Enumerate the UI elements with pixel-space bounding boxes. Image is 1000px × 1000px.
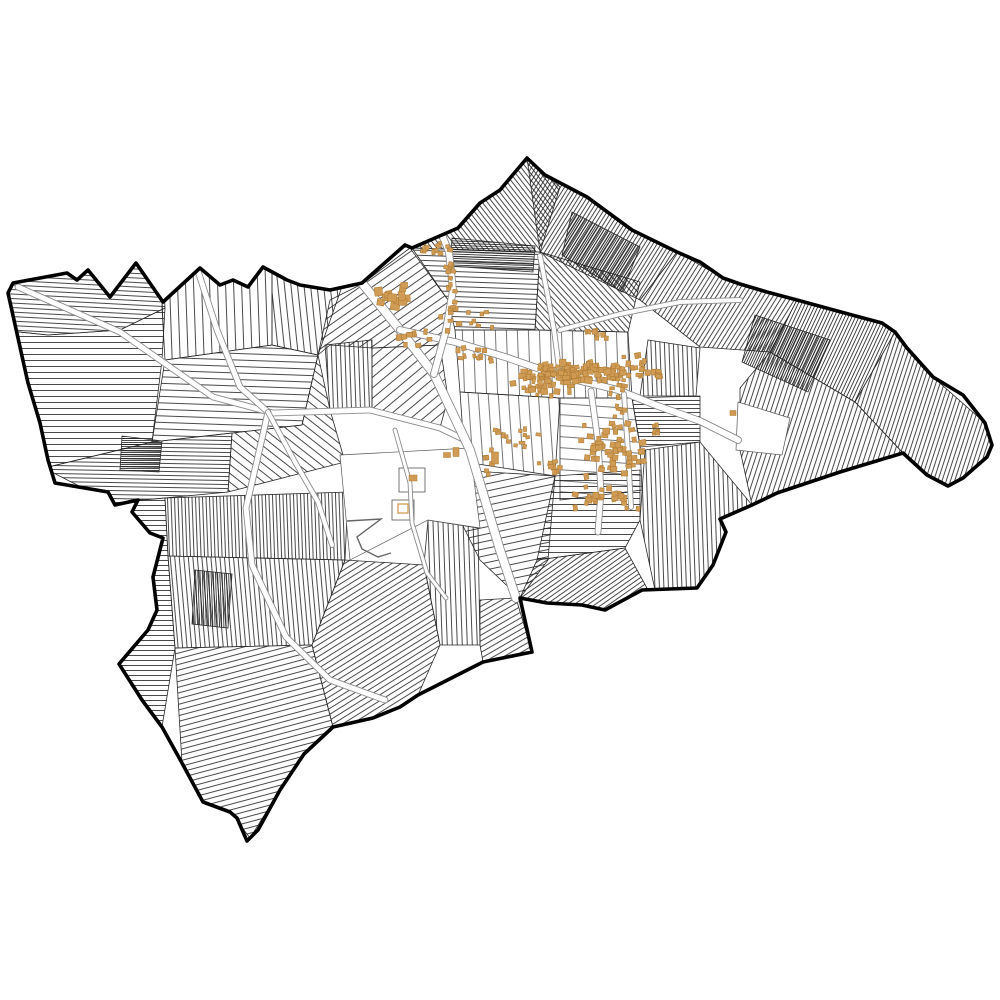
building xyxy=(610,387,615,390)
building xyxy=(626,450,632,456)
building xyxy=(489,448,493,453)
building xyxy=(639,439,647,446)
building xyxy=(617,437,621,441)
building xyxy=(599,488,604,493)
building xyxy=(445,328,450,334)
building xyxy=(490,325,493,330)
building xyxy=(573,504,578,511)
building xyxy=(476,356,480,360)
building xyxy=(510,380,517,386)
building xyxy=(597,436,601,441)
building xyxy=(398,291,406,301)
building xyxy=(553,388,560,394)
building xyxy=(514,444,518,448)
building xyxy=(523,433,527,437)
building xyxy=(645,370,651,376)
building xyxy=(452,289,457,293)
building xyxy=(624,420,631,427)
building xyxy=(603,428,610,435)
building xyxy=(567,388,571,394)
cadastral-map xyxy=(0,0,1000,1000)
building xyxy=(415,343,421,348)
building xyxy=(655,369,661,374)
building xyxy=(536,393,540,397)
building xyxy=(452,300,457,305)
building xyxy=(493,428,498,432)
building xyxy=(730,411,736,416)
building xyxy=(445,244,449,248)
building xyxy=(466,310,470,315)
building xyxy=(612,424,616,429)
building xyxy=(492,452,499,464)
building xyxy=(407,332,413,337)
building xyxy=(584,455,590,461)
building xyxy=(615,404,619,409)
building xyxy=(461,345,466,350)
building xyxy=(523,377,527,381)
building xyxy=(374,287,383,297)
building xyxy=(613,415,617,419)
building-outline xyxy=(398,504,408,513)
building xyxy=(409,475,417,481)
cadastral-map-page xyxy=(0,0,1000,1000)
building xyxy=(538,373,543,376)
building xyxy=(427,337,432,341)
building xyxy=(615,365,620,369)
building xyxy=(626,373,631,378)
building xyxy=(593,363,598,368)
building xyxy=(622,408,627,413)
building xyxy=(609,391,613,396)
building xyxy=(640,458,647,464)
building xyxy=(617,394,621,398)
building xyxy=(564,380,571,384)
building xyxy=(448,261,454,267)
building xyxy=(519,441,525,444)
building xyxy=(599,494,605,498)
building xyxy=(620,387,625,393)
building xyxy=(610,466,617,472)
building xyxy=(601,377,607,384)
building xyxy=(456,321,462,326)
building xyxy=(651,369,656,375)
building xyxy=(587,330,592,335)
building xyxy=(655,431,660,435)
building xyxy=(655,423,659,428)
building xyxy=(612,496,619,501)
building xyxy=(604,336,608,341)
building xyxy=(523,444,527,449)
building xyxy=(571,372,577,378)
building xyxy=(538,363,543,369)
building xyxy=(396,334,402,341)
building xyxy=(636,506,641,511)
building xyxy=(448,276,453,281)
building xyxy=(451,269,456,273)
building xyxy=(572,378,580,384)
building xyxy=(489,358,494,363)
building xyxy=(598,467,605,472)
building xyxy=(518,429,522,433)
building xyxy=(424,329,428,335)
building xyxy=(537,379,543,386)
building xyxy=(626,464,632,469)
building xyxy=(451,305,456,308)
building xyxy=(583,364,587,371)
building xyxy=(631,455,637,461)
building xyxy=(584,377,593,384)
building xyxy=(449,282,453,287)
building xyxy=(536,433,542,437)
building xyxy=(584,485,588,490)
building xyxy=(655,374,662,379)
building xyxy=(587,434,594,440)
building xyxy=(485,456,489,460)
building xyxy=(505,435,508,439)
parcel-block xyxy=(192,570,232,628)
building xyxy=(558,370,564,375)
building xyxy=(621,471,628,477)
building xyxy=(635,353,639,359)
building xyxy=(521,369,528,373)
building xyxy=(549,393,553,398)
building xyxy=(523,427,526,432)
building xyxy=(591,456,595,461)
building xyxy=(563,375,570,380)
building xyxy=(528,387,535,393)
building xyxy=(548,464,554,469)
building xyxy=(484,469,488,473)
building xyxy=(458,356,463,360)
building xyxy=(622,378,626,381)
building xyxy=(475,348,481,352)
building xyxy=(632,437,637,443)
building xyxy=(432,250,435,255)
building xyxy=(401,282,408,288)
building xyxy=(584,501,588,506)
building xyxy=(552,469,556,475)
parcel-block xyxy=(640,340,700,396)
parcel-block xyxy=(325,340,372,410)
building xyxy=(630,365,635,370)
building xyxy=(639,367,644,372)
building xyxy=(579,438,584,443)
building xyxy=(625,506,629,510)
building xyxy=(636,373,641,377)
building xyxy=(438,251,444,256)
building xyxy=(622,355,626,359)
building xyxy=(551,372,557,377)
building xyxy=(593,492,599,498)
building xyxy=(480,312,484,316)
building xyxy=(641,358,646,364)
building xyxy=(583,473,589,480)
building xyxy=(425,245,429,250)
building xyxy=(613,429,618,435)
building xyxy=(603,368,611,375)
building xyxy=(482,348,487,353)
building xyxy=(476,323,481,327)
building xyxy=(617,447,622,452)
building xyxy=(444,453,451,458)
building xyxy=(615,373,619,377)
building xyxy=(456,348,460,353)
building xyxy=(615,442,621,448)
building xyxy=(403,342,407,347)
building xyxy=(472,354,476,358)
building xyxy=(545,372,551,377)
building xyxy=(387,293,397,302)
building xyxy=(582,423,586,428)
building xyxy=(587,369,594,374)
building xyxy=(446,269,451,274)
building xyxy=(472,319,476,323)
building xyxy=(606,486,611,491)
building xyxy=(448,319,453,323)
building xyxy=(557,465,562,470)
building xyxy=(506,439,511,443)
building xyxy=(613,455,619,461)
building xyxy=(628,427,635,432)
building xyxy=(638,449,645,455)
building xyxy=(548,384,552,388)
building xyxy=(484,310,489,313)
building xyxy=(537,462,541,465)
building xyxy=(572,492,579,498)
building xyxy=(438,314,443,319)
parcel-block xyxy=(120,436,162,472)
building xyxy=(616,377,621,381)
building xyxy=(453,448,459,457)
building xyxy=(592,329,598,334)
building xyxy=(545,378,552,384)
